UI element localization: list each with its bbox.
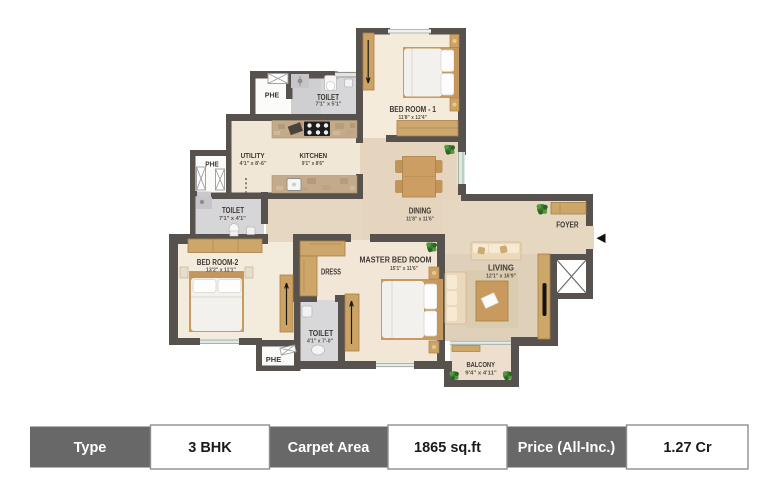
svg-text:11'8" x 12'4": 11'8" x 12'4" bbox=[398, 115, 427, 121]
svg-text:BED ROOM - 1: BED ROOM - 1 bbox=[389, 105, 436, 114]
svg-text:13'2" x 11'1": 13'2" x 11'1" bbox=[206, 268, 237, 274]
svg-text:BED ROOM-2: BED ROOM-2 bbox=[197, 258, 239, 267]
svg-text:PHE: PHE bbox=[265, 93, 280, 100]
svg-text:KITCHEN: KITCHEN bbox=[299, 151, 327, 160]
svg-text:TOILET: TOILET bbox=[222, 206, 244, 215]
svg-text:LIVING: LIVING bbox=[488, 264, 514, 273]
svg-text:FOYER: FOYER bbox=[556, 221, 579, 230]
svg-text:Carpet Area: Carpet Area bbox=[288, 440, 371, 456]
svg-text:DINING: DINING bbox=[409, 207, 432, 216]
svg-text:11'8" x 11'6": 11'8" x 11'6" bbox=[406, 216, 435, 222]
svg-text:MASTER BED ROOM: MASTER BED ROOM bbox=[360, 256, 432, 265]
svg-text:TOILET: TOILET bbox=[309, 329, 334, 338]
svg-text:DRESS: DRESS bbox=[321, 268, 341, 277]
svg-text:9'1" x 8'6": 9'1" x 8'6" bbox=[302, 161, 325, 167]
svg-text:UTILITY: UTILITY bbox=[241, 151, 265, 160]
svg-text:4'1" x 8'-6": 4'1" x 8'-6" bbox=[240, 161, 268, 167]
svg-text:BALCONY: BALCONY bbox=[466, 360, 495, 369]
svg-text:7'1" x 5'1": 7'1" x 5'1" bbox=[316, 102, 343, 108]
svg-text:Price (All-Inc.): Price (All-Inc.) bbox=[518, 440, 616, 456]
svg-text:PHE: PHE bbox=[205, 162, 219, 169]
svg-text:3 BHK: 3 BHK bbox=[188, 440, 232, 456]
svg-text:1.27 Cr: 1.27 Cr bbox=[663, 440, 712, 456]
svg-text:15'1" x 11'6": 15'1" x 11'6" bbox=[390, 266, 419, 272]
svg-text:PHE: PHE bbox=[266, 357, 282, 364]
svg-text:7'1" x 4'1": 7'1" x 4'1" bbox=[219, 216, 247, 222]
svg-text:9'4" x 4'11": 9'4" x 4'11" bbox=[465, 370, 497, 376]
svg-text:4'1" x 7'-0": 4'1" x 7'-0" bbox=[307, 339, 334, 345]
svg-text:1865 sq.ft: 1865 sq.ft bbox=[414, 440, 481, 456]
svg-text:12'1" x 16'9": 12'1" x 16'9" bbox=[486, 273, 517, 279]
svg-text:Type: Type bbox=[74, 440, 107, 456]
